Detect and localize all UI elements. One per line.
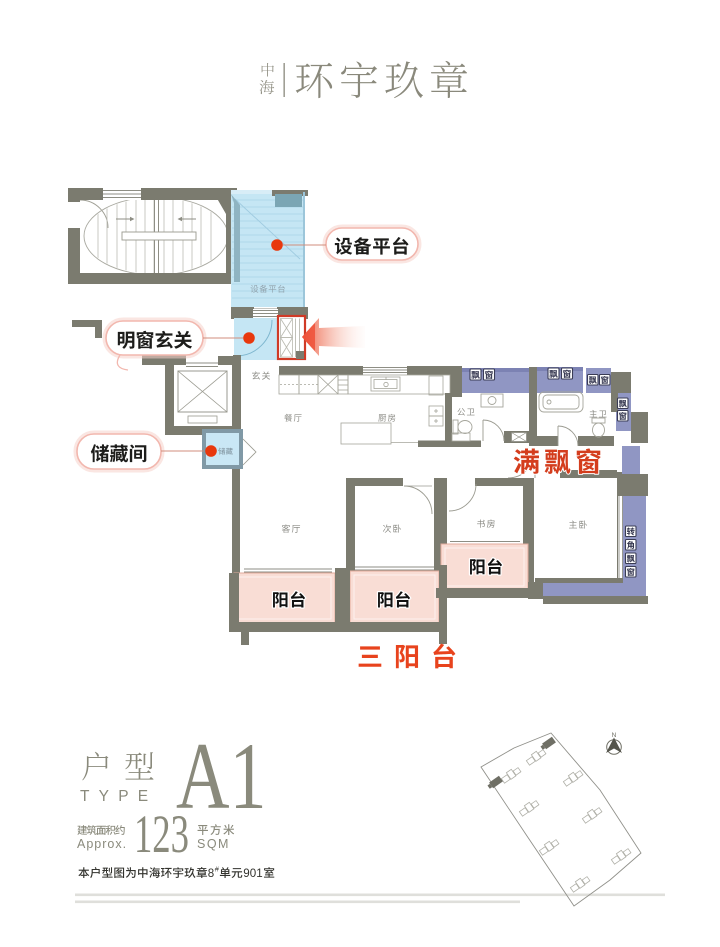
svg-text:123: 123: [134, 804, 189, 864]
svg-text:901: 901: [243, 867, 262, 880]
svg-text:TYPE: TYPE: [80, 788, 157, 805]
svg-text:N: N: [612, 732, 617, 739]
svg-text:A1: A1: [176, 724, 267, 829]
svg-text:Approx.: Approx.: [77, 837, 127, 851]
svg-text:8: 8: [208, 867, 214, 880]
svg-text:SQM: SQM: [197, 837, 230, 851]
